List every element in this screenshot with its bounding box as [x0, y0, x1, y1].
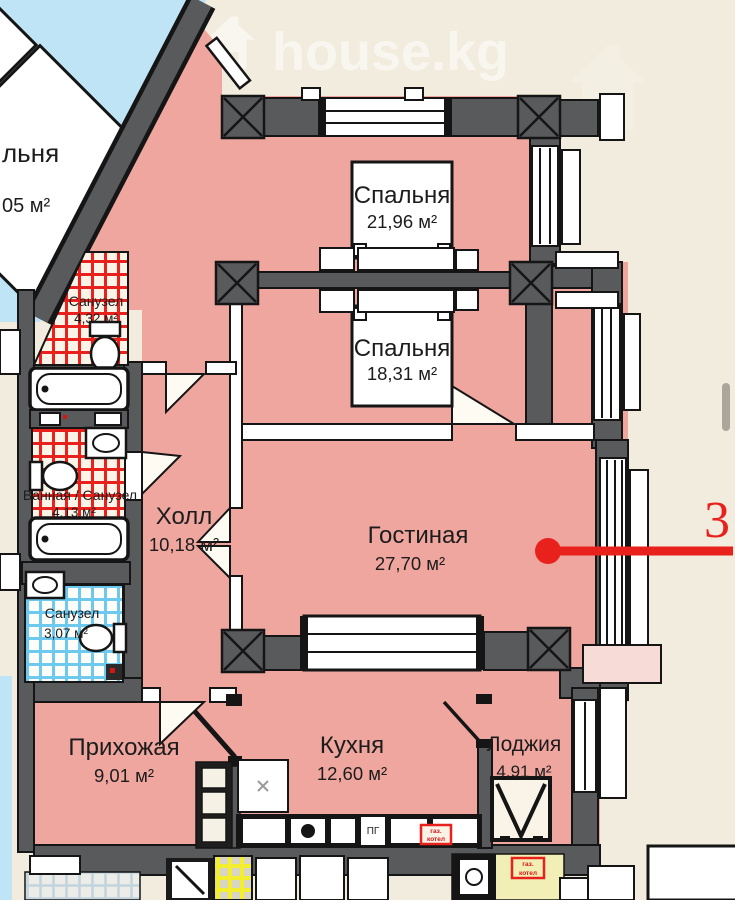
svg-text:котел: котел [427, 836, 445, 843]
neighbor-sink [0, 554, 20, 590]
neighbor-room-label: льня [2, 138, 59, 168]
bedroom2-area: 18,31 м² [367, 363, 437, 384]
bedroom1-side-window [532, 146, 558, 246]
bathtub [30, 518, 128, 560]
living-area: 27,70 м² [375, 553, 445, 574]
loggia-area: 4,91 м² [496, 762, 551, 781]
living-label: Гостиная [368, 522, 469, 549]
svg-text:котел: котел [519, 870, 537, 877]
entry-label: Прихожая [68, 734, 179, 761]
hall-label: Холл [156, 503, 213, 530]
svg-text:газ.: газ. [522, 861, 534, 868]
bedroom1-top-window [324, 98, 446, 136]
toilet [90, 322, 120, 371]
bathroom3-label: Санузел [45, 605, 100, 621]
gas-boiler-label: газ. котел [512, 858, 544, 878]
bedroom1-label: Спальня [354, 182, 450, 209]
gas-boiler-label: газ. котел [421, 825, 451, 844]
bedroom1-area: 21,96 м² [367, 211, 437, 232]
neighbor-room-area: 05 м² [2, 195, 51, 217]
floorplan-viewer: house.kg льня 05 м² [0, 0, 735, 900]
loggia-label: Лоджия [487, 733, 561, 756]
toilet [30, 462, 77, 490]
kitchen-label: Кухня [320, 732, 384, 759]
bathroom2-area: 4,13 м² [52, 505, 96, 520]
gas-stove-label: ПГ [367, 826, 380, 837]
bathroom2-label: Ванная / Санузел [23, 487, 137, 503]
sink [86, 428, 126, 458]
bathroom3-area: 3,07 м² [44, 626, 88, 641]
loggia-unit [492, 778, 550, 842]
neighbor-sink [0, 330, 20, 374]
kitchen-area: 12,60 м² [317, 763, 387, 784]
floorplan-image: house.kg льня 05 м² [0, 0, 735, 900]
bathroom1-label: Санузел [69, 293, 124, 309]
scrollbar-thumb[interactable] [722, 383, 730, 431]
entry-area: 9,01 м² [94, 765, 154, 786]
sink [26, 572, 64, 598]
marker-dot [535, 538, 561, 564]
bathroom1-area: 4,32 м² [74, 311, 118, 326]
watermark-brand: house.kg [272, 22, 509, 82]
svg-text:газ.: газ. [430, 828, 442, 835]
bedroom2-window [594, 304, 620, 420]
bathtub [30, 368, 128, 410]
hall-area: 10,18 м² [149, 534, 219, 555]
bedroom2-label: Спальня [354, 335, 450, 362]
apartment-number: 3 [704, 492, 730, 549]
living-balcony-glazing [304, 616, 480, 670]
